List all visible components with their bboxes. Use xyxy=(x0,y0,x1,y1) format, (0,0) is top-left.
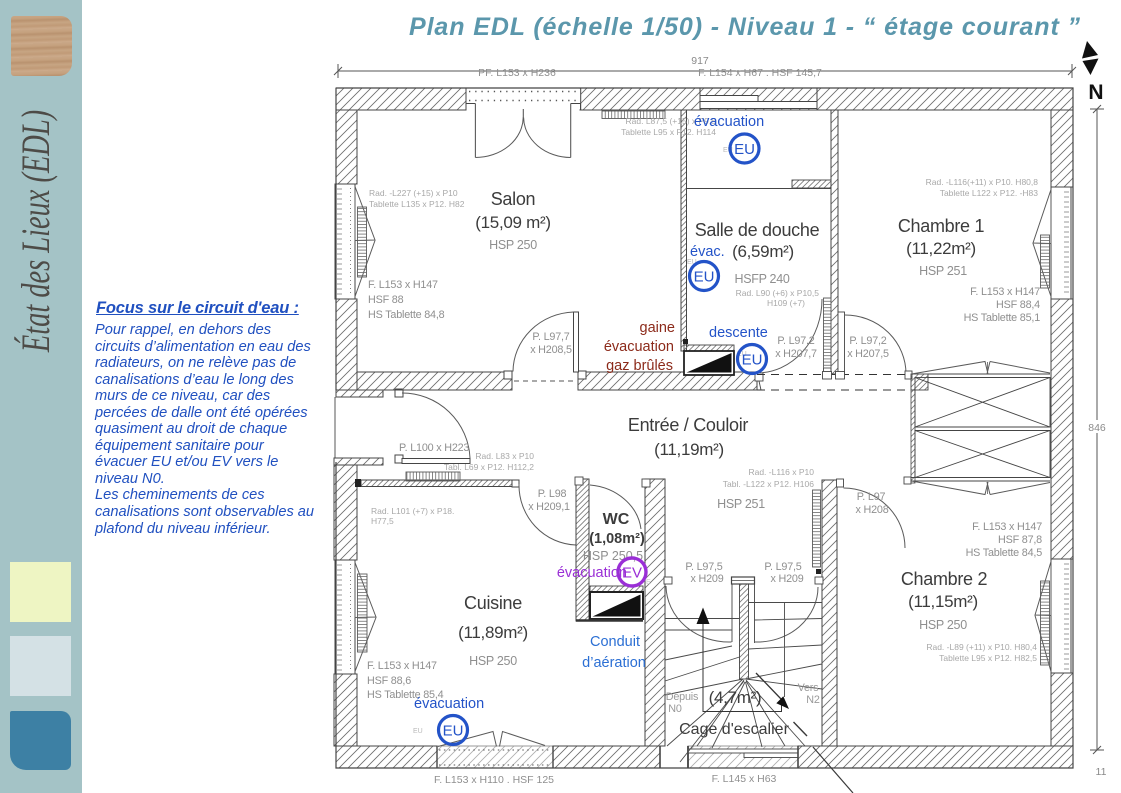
svg-text:N0: N0 xyxy=(668,703,682,715)
svg-text:évacuation: évacuation xyxy=(694,114,764,130)
svg-text:P. L97,7: P. L97,7 xyxy=(532,331,569,343)
svg-text:(15,09 m²): (15,09 m²) xyxy=(475,213,550,232)
svg-text:HS Tablette 84,8: HS Tablette 84,8 xyxy=(368,309,445,321)
svg-text:Rad. -L227 (+15) x P10: Rad. -L227 (+15) x P10 xyxy=(369,188,458,198)
svg-text:P. L98: P. L98 xyxy=(538,488,567,500)
svg-text:N2: N2 xyxy=(806,694,820,706)
svg-text:Tablette L95 x P12. H82,5: Tablette L95 x P12. H82,5 xyxy=(939,653,1037,663)
svg-text:E: E xyxy=(646,579,651,586)
svg-text:Salle de douche: Salle de douche xyxy=(695,220,820,240)
svg-text:x H209,1: x H209,1 xyxy=(528,501,570,513)
svg-text:(11,22m²): (11,22m²) xyxy=(906,239,976,258)
svg-text:P. L97,2: P. L97,2 xyxy=(849,335,886,347)
svg-text:(11,15m²): (11,15m²) xyxy=(908,592,978,611)
svg-text:Rad. -L116 x P10: Rad. -L116 x P10 xyxy=(748,467,814,477)
svg-text:(11,19m²): (11,19m²) xyxy=(654,440,724,459)
svg-text:Tabl. L69 x P12. H112,2: Tabl. L69 x P12. H112,2 xyxy=(444,462,534,472)
svg-text:Rad. L83 x P10: Rad. L83 x P10 xyxy=(475,451,534,461)
svg-text:F. L145 x H63: F. L145 x H63 xyxy=(712,773,777,785)
svg-text:F. L153 x H147: F. L153 x H147 xyxy=(367,660,437,672)
svg-text:HSP 251: HSP 251 xyxy=(717,497,765,511)
svg-text:d’aération: d’aération xyxy=(582,655,646,671)
svg-text:HSP 250: HSP 250 xyxy=(469,654,517,668)
svg-text:P. L100 x H223: P. L100 x H223 xyxy=(399,442,469,454)
svg-text:H77,5: H77,5 xyxy=(371,516,394,526)
svg-text:HSF 88: HSF 88 xyxy=(368,294,404,306)
svg-text:Salon: Salon xyxy=(491,189,536,209)
svg-text:x H209: x H209 xyxy=(690,573,723,585)
svg-text:P. L97: P. L97 xyxy=(857,491,886,503)
svg-text:WC: WC xyxy=(603,511,630,528)
svg-text:F. L153 x H147: F. L153 x H147 xyxy=(368,279,438,291)
svg-text:PF. L153 x H236: PF. L153 x H236 xyxy=(478,67,556,79)
svg-text:(6,59m²): (6,59m²) xyxy=(732,242,794,261)
svg-text:HS Tablette 84,5: HS Tablette 84,5 xyxy=(966,547,1043,559)
svg-text:Chambre 1: Chambre 1 xyxy=(898,216,985,236)
svg-text:Conduit: Conduit xyxy=(590,634,640,650)
svg-text:HSP 250: HSP 250 xyxy=(489,238,537,252)
svg-text:(1,08m²): (1,08m²) xyxy=(589,531,645,547)
svg-text:P. L97,5: P. L97,5 xyxy=(764,561,801,573)
svg-text:(4,7m²): (4,7m²) xyxy=(709,688,762,707)
svg-text:HSF 88,4: HSF 88,4 xyxy=(996,299,1040,311)
svg-text:917: 917 xyxy=(691,55,709,67)
svg-text:EU: EU xyxy=(443,723,464,740)
svg-text:x H207,7: x H207,7 xyxy=(775,348,817,360)
svg-text:Rad. -L116(+11) x P10. H80,8: Rad. -L116(+11) x P10. H80,8 xyxy=(926,177,1039,187)
svg-text:gaine: gaine xyxy=(640,320,675,336)
svg-text:846: 846 xyxy=(1088,422,1106,434)
svg-text:Rad. L90 (+6) x P10,5: Rad. L90 (+6) x P10,5 xyxy=(736,288,820,298)
svg-text:EU: EU xyxy=(742,352,763,369)
svg-text:EU: EU xyxy=(413,728,423,735)
svg-text:F. L153 x H147: F. L153 x H147 xyxy=(970,286,1040,298)
svg-text:EV: EV xyxy=(622,565,642,582)
svg-text:Rad. L101 (+7) x P18.: Rad. L101 (+7) x P18. xyxy=(371,506,454,516)
svg-text:11: 11 xyxy=(1096,766,1107,778)
svg-text:F. L153 x H147: F. L153 x H147 xyxy=(972,521,1042,533)
svg-text:évac.: évac. xyxy=(690,244,725,260)
svg-text:évacuation: évacuation xyxy=(414,696,484,712)
svg-text:HS Tablette 85,1: HS Tablette 85,1 xyxy=(964,312,1041,324)
svg-text:x H208,5: x H208,5 xyxy=(530,344,572,356)
svg-text:F. L153 x H110 . HSF 125: F. L153 x H110 . HSF 125 xyxy=(434,774,554,786)
svg-text:HSP 250: HSP 250 xyxy=(919,618,967,632)
svg-text:EU: EU xyxy=(734,141,755,158)
svg-text:Cage d'escalier: Cage d'escalier xyxy=(679,721,789,738)
svg-text:x H207,5: x H207,5 xyxy=(847,348,889,360)
svg-text:P. L97,5: P. L97,5 xyxy=(685,561,722,573)
svg-text:Rad. -L89 (+11) x P10. H80,4: Rad. -L89 (+11) x P10. H80,4 xyxy=(926,642,1037,652)
svg-text:EU: EU xyxy=(694,269,715,286)
svg-text:H109 (+7): H109 (+7) xyxy=(767,298,805,308)
svg-text:P. L97,2: P. L97,2 xyxy=(777,335,814,347)
svg-text:x H208: x H208 xyxy=(855,504,888,516)
svg-text:Vers: Vers xyxy=(798,682,820,694)
svg-text:Chambre 2: Chambre 2 xyxy=(901,569,988,589)
svg-text:descente: descente xyxy=(709,325,768,341)
svg-text:HSFP 240: HSFP 240 xyxy=(734,272,789,286)
svg-text:évacuation: évacuation xyxy=(604,339,674,355)
svg-text:Tablette L122 x P12. -H83: Tablette L122 x P12. -H83 xyxy=(940,188,1039,198)
svg-text:(11,89m²): (11,89m²) xyxy=(458,623,528,642)
svg-text:Cuisine: Cuisine xyxy=(464,593,522,613)
svg-text:HSP 250,5: HSP 250,5 xyxy=(583,549,643,563)
svg-text:N: N xyxy=(1088,81,1103,104)
svg-text:Tablette L135 x P12. H82: Tablette L135 x P12. H82 xyxy=(369,199,465,209)
svg-text:Depuis: Depuis xyxy=(666,691,699,703)
svg-text:Tabl. -L122 x P12. H106: Tabl. -L122 x P12. H106 xyxy=(723,479,814,489)
svg-text:Entrée / Couloir: Entrée / Couloir xyxy=(628,415,749,435)
svg-text:F. L154 x H67 . HSF 145,7: F. L154 x H67 . HSF 145,7 xyxy=(698,67,822,79)
svg-text:HSP 251: HSP 251 xyxy=(919,264,967,278)
svg-text:x H209: x H209 xyxy=(770,573,803,585)
svg-text:HSF 88,6: HSF 88,6 xyxy=(367,675,411,687)
svg-text:gaz brûlés: gaz brûlés xyxy=(606,358,673,374)
svg-text:HSF 87,8: HSF 87,8 xyxy=(998,534,1042,546)
